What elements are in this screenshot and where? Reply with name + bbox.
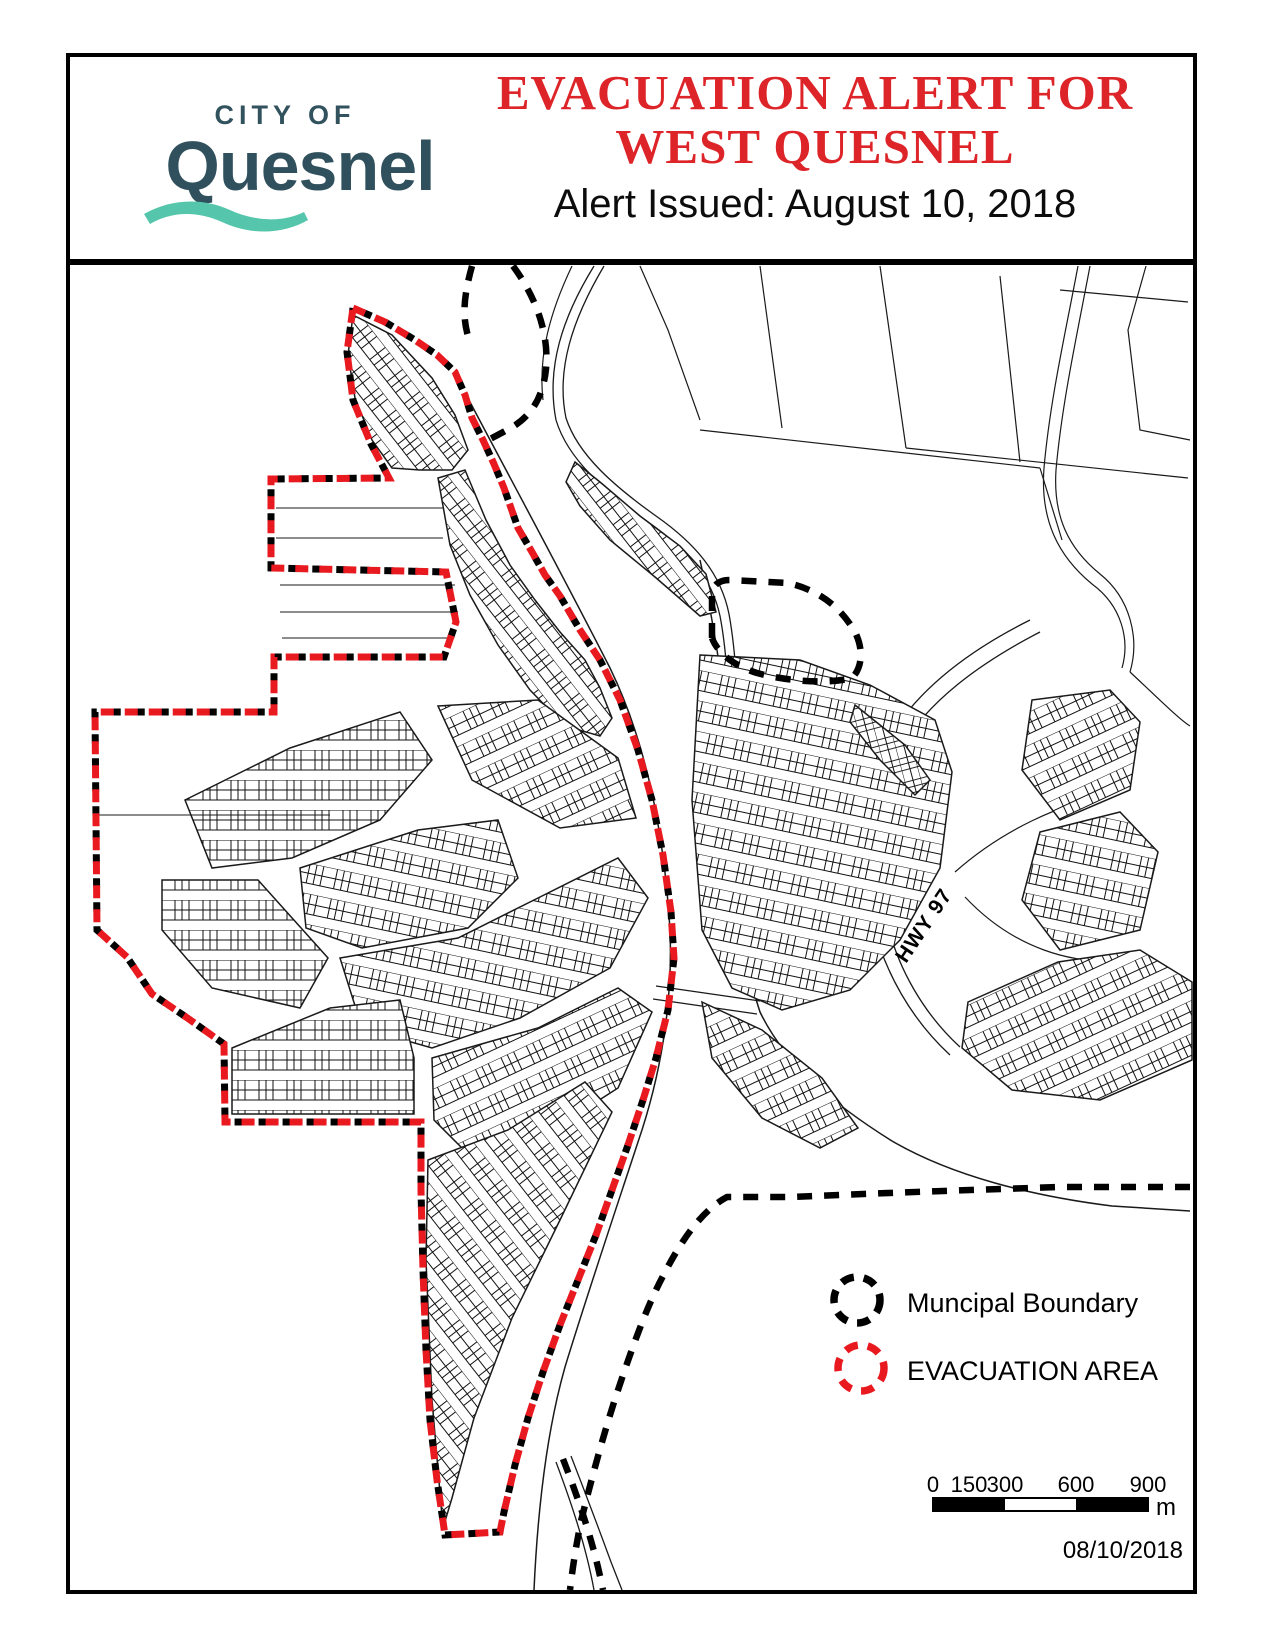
map-date: 08/10/2018 [1063,1537,1183,1564]
scale-bar-segment-3 [1076,1498,1148,1511]
scale-unit: m [1156,1494,1176,1521]
evacuation-alert-flyer: CITY OF Quesnel EVACUATION ALERT FOR WES… [0,0,1275,1650]
page-title-line2: WEST QUESNEL [460,120,1170,174]
logo-wave-icon [142,196,312,236]
municipal-boundary-legend-icon [834,1277,880,1323]
scale-tick-300: 300 [987,1472,1024,1497]
map-legend: Muncipal Boundary EVACUATION AREA [834,1277,1158,1391]
map-panel: HWY 97 Muncipal Boundary EVACUATION AREA… [70,265,1193,1590]
city-logo: CITY OF Quesnel [140,100,460,200]
scale-tick-0: 0 [927,1472,939,1497]
scale-bar: 0 150 300 600 900 m [927,1472,1176,1521]
scale-bar-segment-1 [933,1498,1005,1511]
header-titles: EVACUATION ALERT FOR WEST QUESNEL Alert … [460,66,1170,227]
municipal-boundary-legend-label: Muncipal Boundary [907,1288,1139,1318]
scale-tick-600: 600 [1058,1472,1095,1497]
evacuation-area-legend-label: EVACUATION AREA [907,1356,1158,1386]
scale-tick-150: 150 [951,1472,988,1497]
parcel-fabric [162,315,1192,1528]
alert-issued-date: Alert Issued: August 10, 2018 [460,182,1170,227]
map-canvas: HWY 97 Muncipal Boundary EVACUATION AREA… [70,265,1193,1590]
page-title-line1: EVACUATION ALERT FOR [460,66,1170,120]
evacuation-area-legend-icon [838,1345,884,1391]
logo-wordmark: Quesnel [140,133,460,200]
